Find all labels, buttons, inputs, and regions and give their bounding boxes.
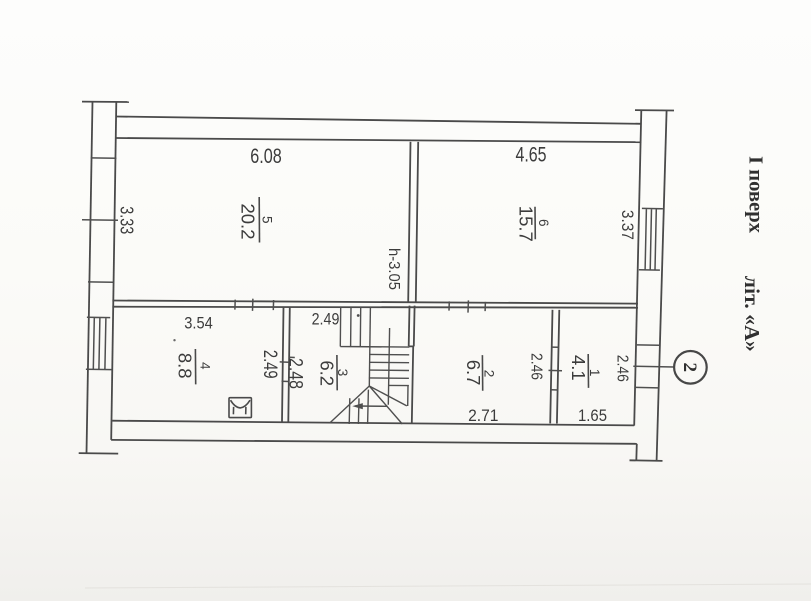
svg-text:6.08: 6.08 xyxy=(250,145,282,168)
svg-text:h-3.05: h-3.05 xyxy=(385,248,402,290)
svg-text:20.2: 20.2 xyxy=(238,203,259,239)
svg-text:3.37: 3.37 xyxy=(618,210,637,240)
svg-text:4.1: 4.1 xyxy=(568,355,589,381)
svg-text:2.49: 2.49 xyxy=(259,350,280,379)
svg-text:4: 4 xyxy=(198,362,213,370)
svg-text:3.54: 3.54 xyxy=(184,314,213,333)
svg-text:4.65: 4.65 xyxy=(515,144,546,167)
svg-text:2.46: 2.46 xyxy=(614,355,631,382)
svg-text:8.8: 8.8 xyxy=(175,353,196,379)
svg-text:6: 6 xyxy=(536,219,551,227)
svg-text:2.71: 2.71 xyxy=(468,406,498,425)
svg-text:3.33: 3.33 xyxy=(117,206,137,234)
svg-text:2.49: 2.49 xyxy=(312,310,340,329)
svg-text:15.7: 15.7 xyxy=(516,206,537,242)
svg-text:2.48: 2.48 xyxy=(284,358,305,389)
svg-text:літ. «А»: літ. «А» xyxy=(740,276,764,352)
svg-text:6.2: 6.2 xyxy=(317,360,338,386)
svg-text:І поверх: І поверх xyxy=(745,156,767,233)
svg-text:5: 5 xyxy=(260,216,275,224)
svg-text:1.65: 1.65 xyxy=(578,406,607,425)
svg-text:6.7: 6.7 xyxy=(463,360,484,386)
svg-text:2: 2 xyxy=(679,363,700,373)
svg-text:2.46: 2.46 xyxy=(528,353,545,380)
